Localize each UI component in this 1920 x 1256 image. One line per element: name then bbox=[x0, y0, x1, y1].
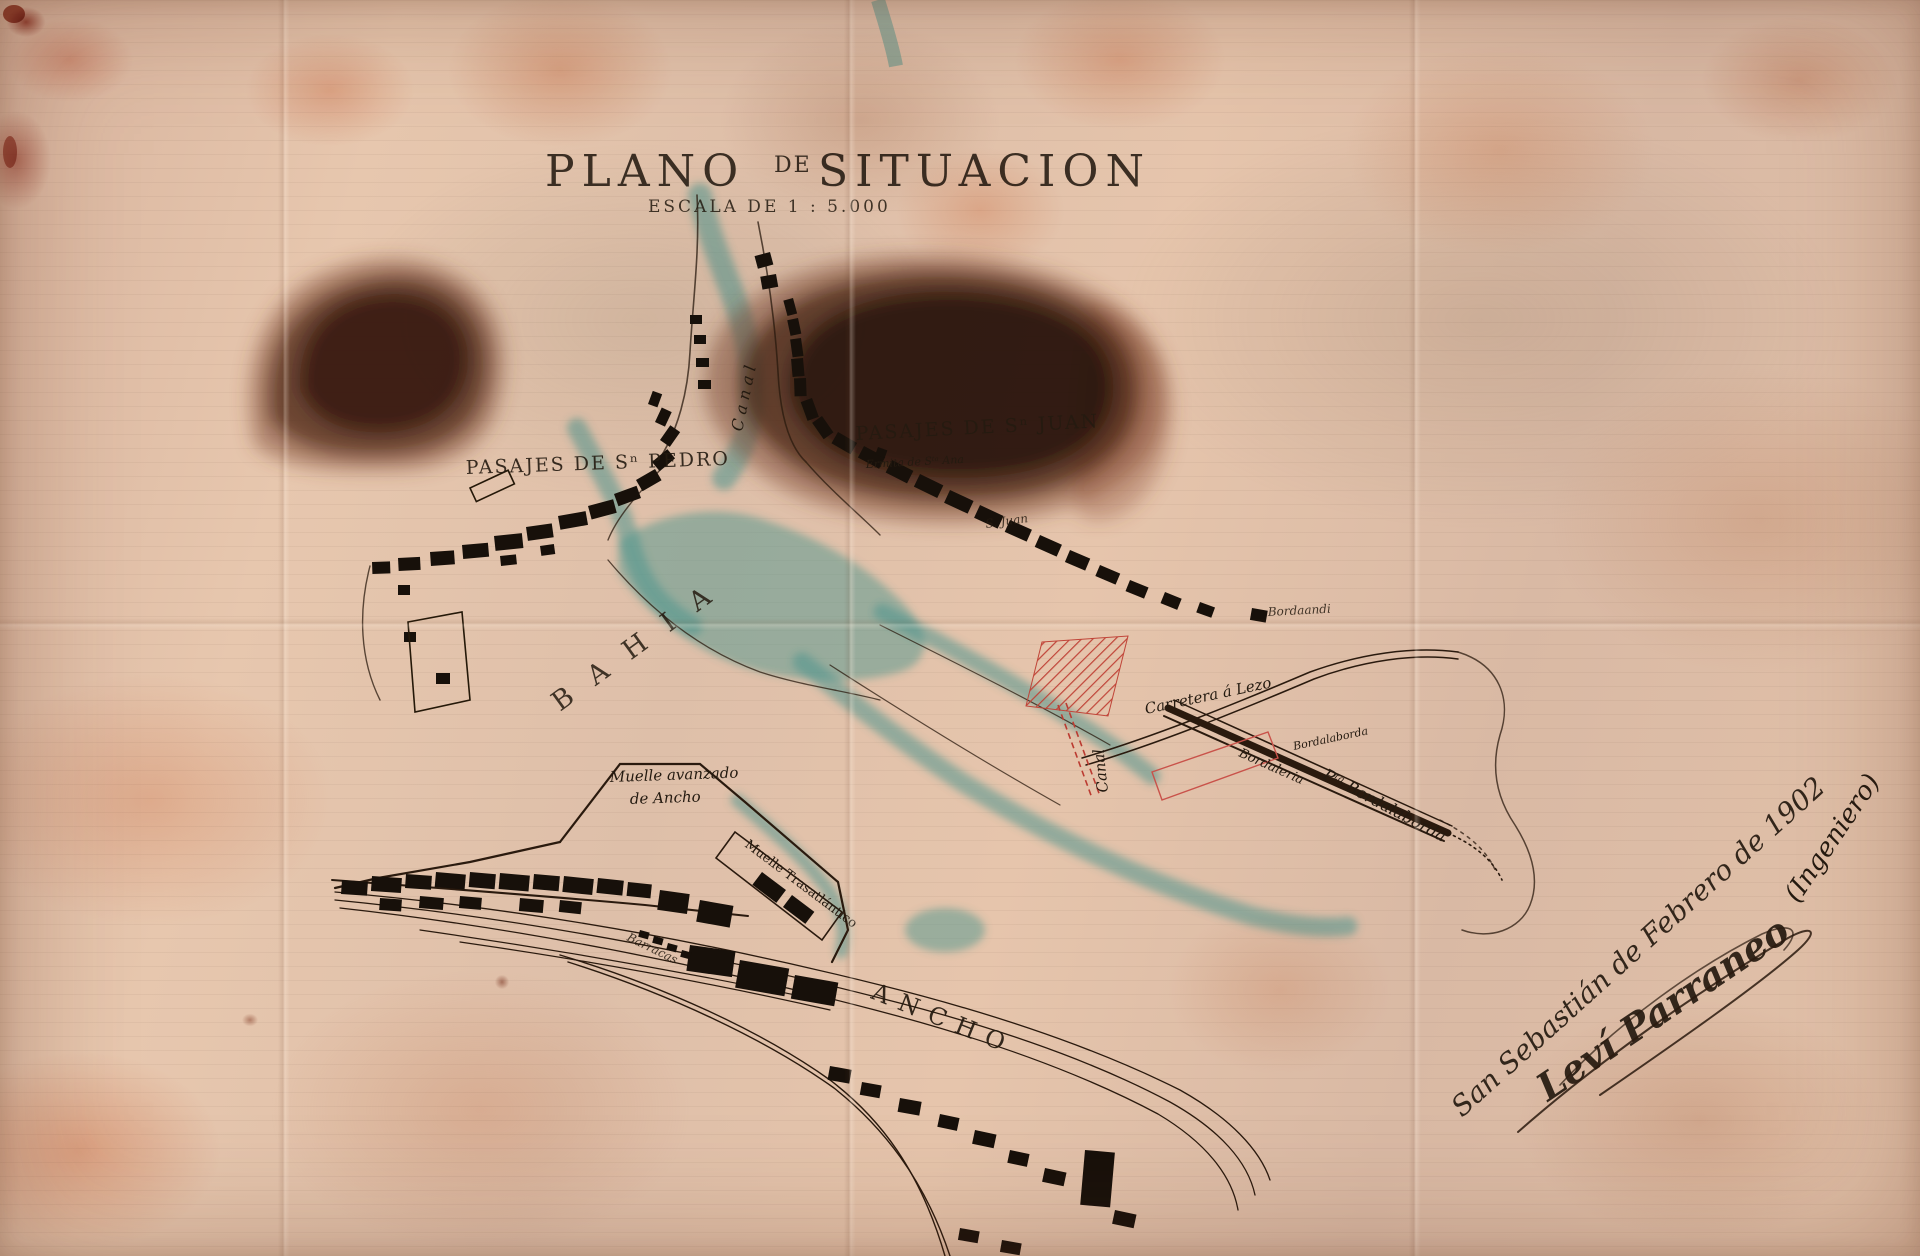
mountain-wash-east bbox=[705, 255, 1172, 523]
ancho-buildings bbox=[341, 872, 1136, 1255]
corner-stains bbox=[3, 0, 896, 168]
map-labels: Canal BAHIA PASAJES DE Sⁿ PEDRO PASAJES … bbox=[465, 359, 1449, 1061]
ancho-quays bbox=[332, 764, 1270, 1256]
teal-smudge bbox=[878, 0, 896, 66]
label-pasajes-san-pedro: PASAJES DE Sⁿ PEDRO bbox=[465, 448, 730, 479]
map-canvas: PLANO DE SITUACION ESCALA DE 1 : 5.000 C… bbox=[0, 0, 1920, 1256]
map-title-word3: SITUACION bbox=[818, 146, 1151, 197]
label-punta-bordalaborda: Pᵗᵃ Bordalaborda bbox=[1319, 764, 1449, 845]
label-bordalaborda: Bordalaborda bbox=[1291, 724, 1369, 753]
map-title-word2: DE bbox=[774, 153, 812, 178]
label-muelle-avanzado-line2: de Ancho bbox=[630, 788, 701, 808]
map-title-word1: PLANO bbox=[545, 146, 745, 197]
scale-label: ESCALA DE 1 : 5.000 bbox=[648, 197, 891, 217]
map-artwork: PLANO DE SITUACION ESCALA DE 1 : 5.000 C… bbox=[0, 0, 1920, 1256]
label-muelle-avanzado-line1: Muelle avanzado bbox=[609, 764, 739, 787]
label-bordaandi: Bordaandi bbox=[1266, 602, 1331, 619]
title-block: PLANO DE SITUACION ESCALA DE 1 : 5.000 bbox=[545, 146, 1151, 217]
mountain-wash-west bbox=[250, 259, 504, 471]
label-canal-red: Canal bbox=[1089, 748, 1112, 794]
inscription-block: San Sebastián de Febrero de 1902 Leví Pa… bbox=[1445, 769, 1887, 1132]
label-ancho: ANCHO bbox=[867, 977, 1020, 1060]
